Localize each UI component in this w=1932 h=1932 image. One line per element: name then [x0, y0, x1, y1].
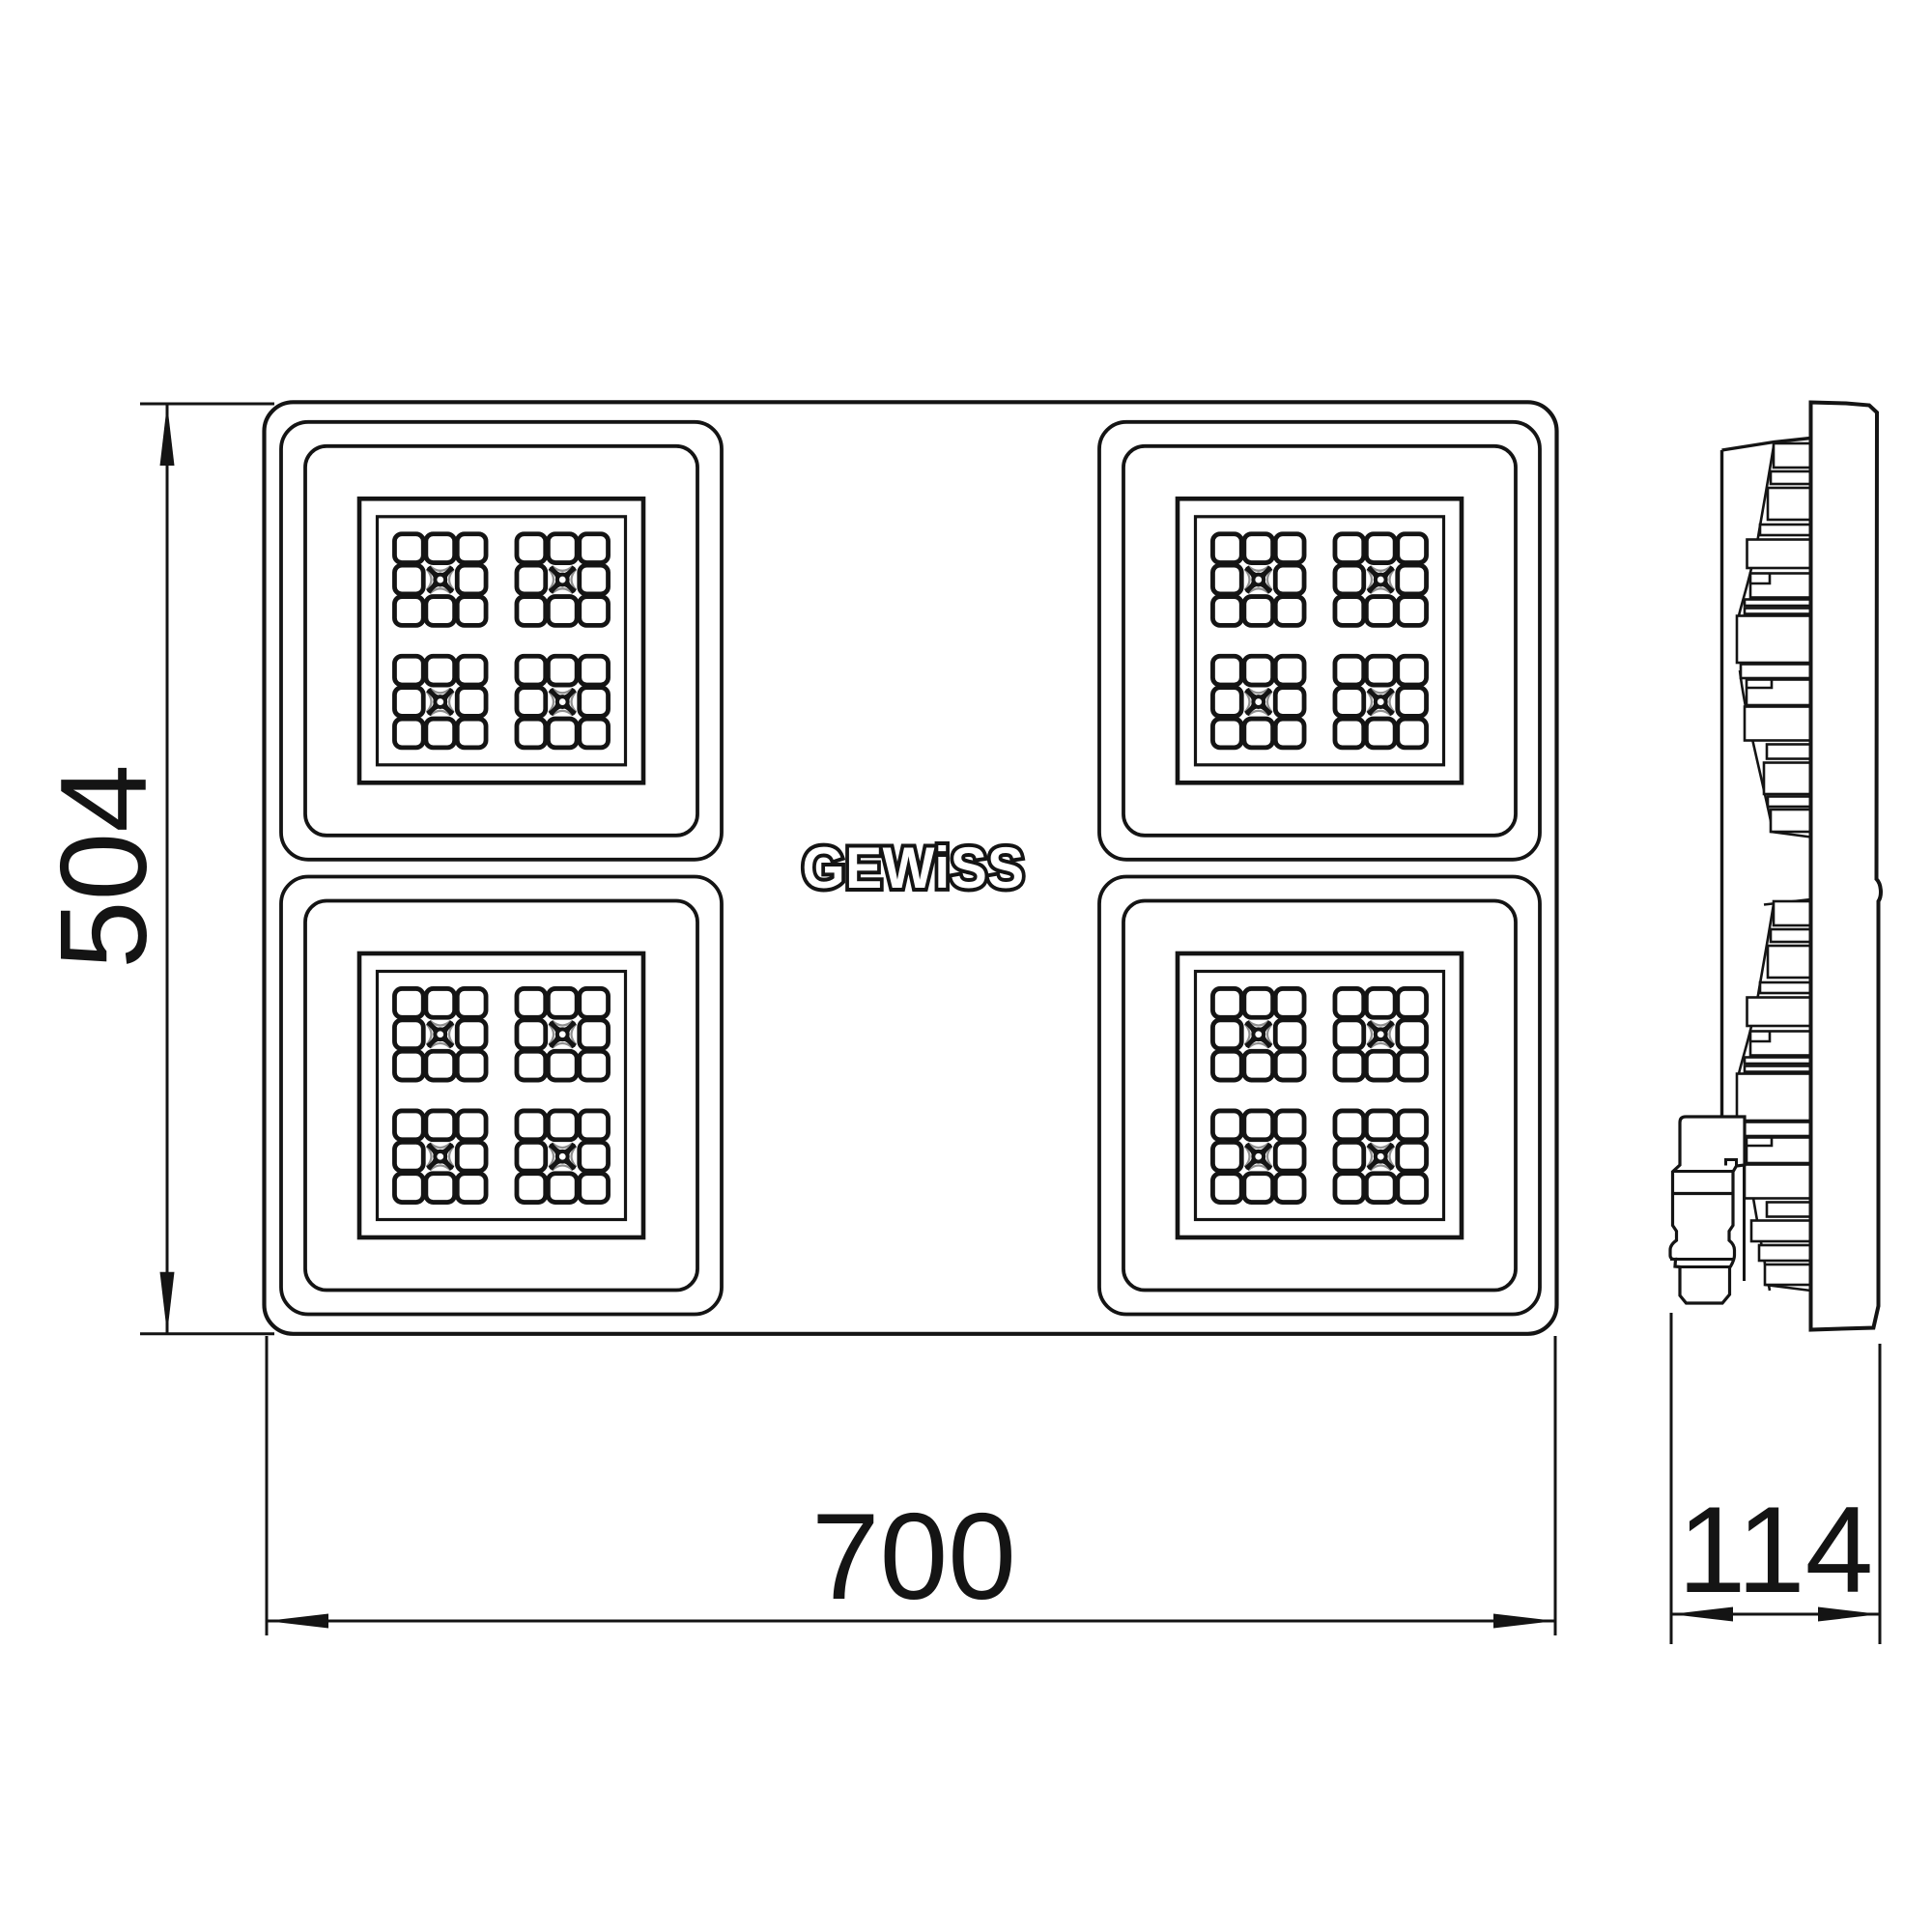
svg-text:504: 504: [35, 764, 172, 969]
svg-text:114: 114: [1678, 1481, 1873, 1618]
svg-text:GEWiSS: GEWiSS: [802, 837, 1024, 901]
svg-text:700: 700: [811, 1488, 1016, 1625]
